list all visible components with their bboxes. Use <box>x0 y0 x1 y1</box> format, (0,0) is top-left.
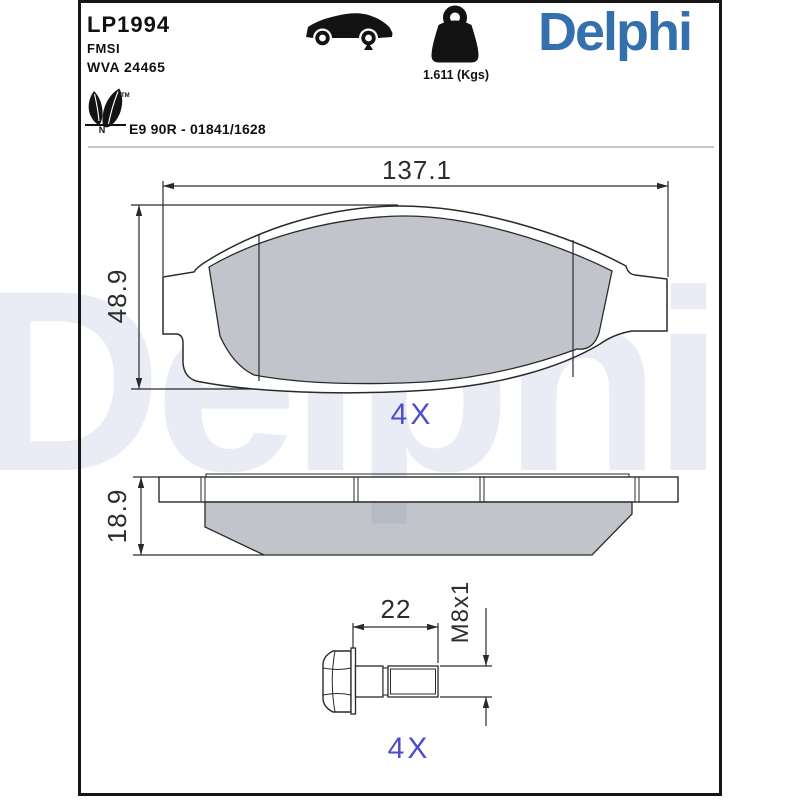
backplate-bar <box>159 477 678 502</box>
leaf-left <box>89 91 103 124</box>
weight-icon <box>424 5 486 67</box>
arrowhead <box>136 205 142 216</box>
wva-number: WVA 24465 <box>87 59 165 75</box>
pad-front-view-drawing: 137.1 48.9 4X <box>78 150 722 462</box>
width-dimension-value: 137.1 <box>382 155 452 185</box>
arrowhead <box>138 477 144 488</box>
header-separator <box>88 146 714 148</box>
approval-number: E9 90R - 01841/1628 <box>129 121 266 137</box>
thread-spec-label: M8x1 <box>447 581 474 644</box>
car-silhouette-icon <box>303 8 395 52</box>
front-view-quantity-label: 4X <box>391 398 434 431</box>
height-dimension-value: 48.9 <box>102 269 132 324</box>
eco-letter-n: N <box>96 125 108 135</box>
bolt-shank <box>356 666 384 697</box>
arrowhead <box>163 183 174 189</box>
bolt-groove <box>383 668 388 695</box>
arrowhead <box>427 624 438 630</box>
bolt-hex-head <box>323 651 351 712</box>
thickness-dimension-value: 18.9 <box>102 489 132 544</box>
fmsi-label: FMSI <box>87 41 120 56</box>
weight-value: 1.611 (Kgs) <box>408 68 504 82</box>
arrowhead <box>483 697 489 708</box>
arrowhead <box>483 655 489 666</box>
front-wheel-hub <box>319 35 326 42</box>
weight-body <box>432 21 479 63</box>
bolt-drawing: 22 M8x1 4X <box>78 575 722 790</box>
friction-material-profile <box>205 502 632 555</box>
rear-wheel-hub <box>365 35 372 42</box>
bolt-thread-outer <box>388 666 438 697</box>
arrowhead <box>657 183 668 189</box>
trademark-symbol: TM <box>121 93 130 99</box>
arrowhead <box>136 378 142 389</box>
arrowhead <box>138 544 144 555</box>
pad-top-view-drawing: 18.9 <box>78 455 722 570</box>
length-dimension-value: 22 <box>381 594 412 624</box>
bolt-flange <box>351 648 356 714</box>
bolt-quantity-label: 4X <box>388 732 431 765</box>
arrowhead <box>353 624 364 630</box>
brand-logo: Delphi <box>538 1 691 63</box>
part-number: LP1994 <box>87 12 170 38</box>
